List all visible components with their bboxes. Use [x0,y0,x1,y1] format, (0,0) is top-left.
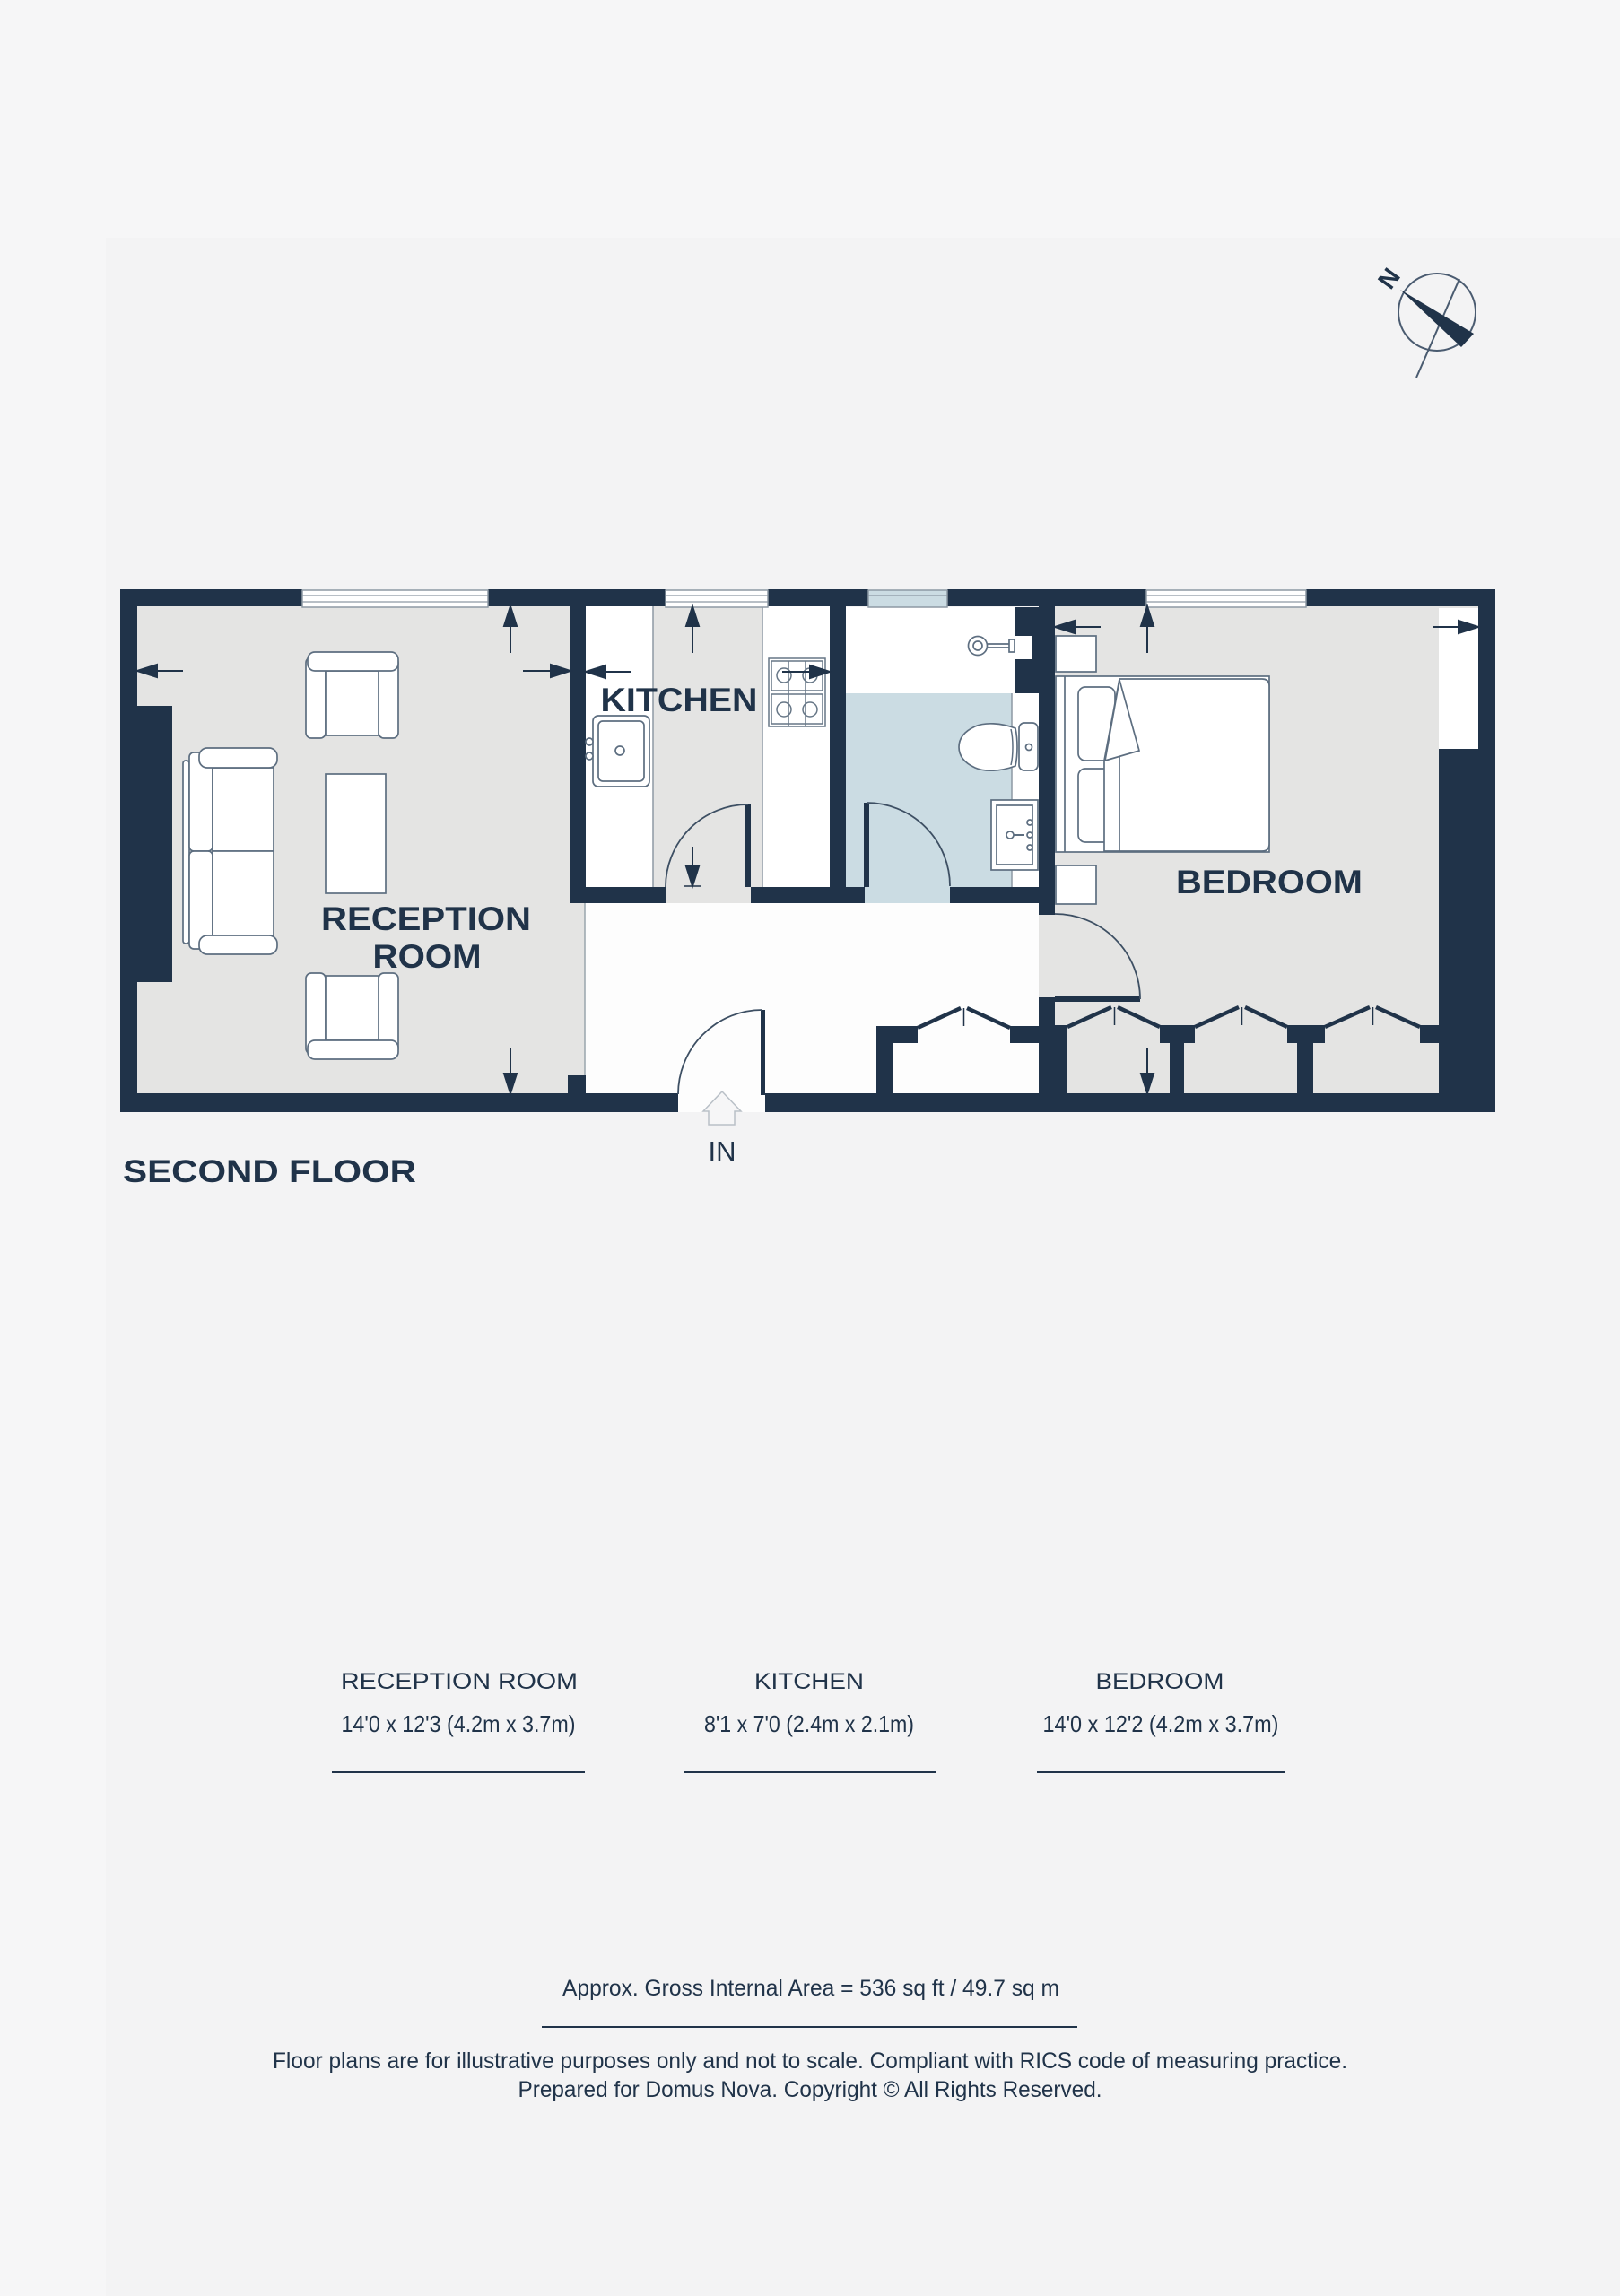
svg-text:8'1 x 7'0 (2.4m x 2.1m): 8'1 x 7'0 (2.4m x 2.1m) [704,1710,914,1737]
svg-text:ROOM: ROOM [373,938,482,975]
svg-text:RECEPTION ROOM: RECEPTION ROOM [341,1669,578,1694]
svg-text:14'0 x 12'2 (4.2m x 3.7m): 14'0 x 12'2 (4.2m x 3.7m) [1043,1710,1279,1737]
svg-text:RECEPTION: RECEPTION [321,900,531,937]
svg-text:14'0 x 12'3 (4.2m x 3.7m): 14'0 x 12'3 (4.2m x 3.7m) [342,1710,576,1737]
svg-text:IN: IN [709,1135,736,1167]
svg-text:BEDROOM: BEDROOM [1176,864,1363,900]
svg-text:Floor plans are for illustrati: Floor plans are for illustrative purpose… [273,2048,1347,2074]
svg-text:BEDROOM: BEDROOM [1096,1669,1224,1694]
svg-text:KITCHEN: KITCHEN [754,1669,864,1694]
svg-text:Approx. Gross Internal Area =: Approx. Gross Internal Area = 536 sq ft … [562,1976,1059,2001]
svg-text:Prepared for Domus Nova. Copyr: Prepared for Domus Nova. Copyright © All… [518,2077,1102,2102]
svg-text:KITCHEN: KITCHEN [601,682,758,718]
svg-text:SECOND FLOOR: SECOND FLOOR [123,1154,416,1189]
